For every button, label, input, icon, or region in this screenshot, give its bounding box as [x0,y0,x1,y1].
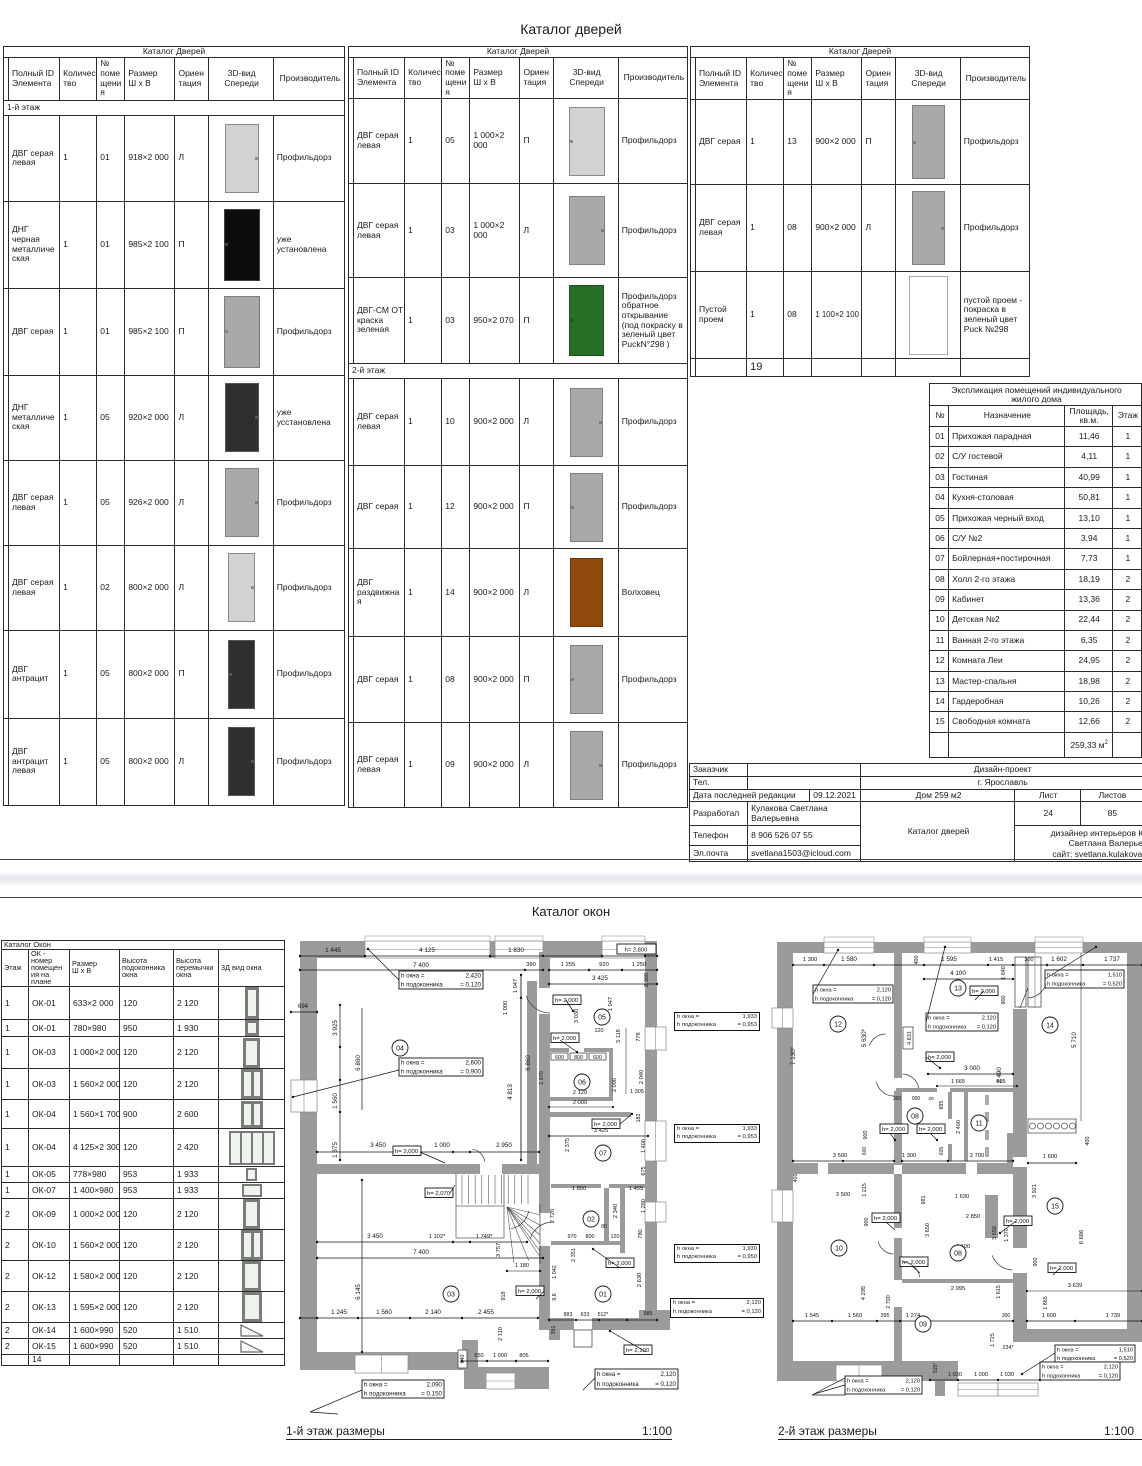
svg-text:1 255: 1 255 [561,962,576,968]
svg-text:1 030: 1 030 [948,1372,962,1378]
svg-text:= 0,120: = 0,120 [872,997,891,1003]
svg-text:= 0,120: = 0,120 [977,1025,996,1031]
svg-text:3 921: 3 921 [1032,1184,1038,1198]
svg-text:694: 694 [298,1004,309,1010]
svg-text:09: 09 [919,1322,927,1329]
svg-text:633: 633 [581,1312,590,1318]
svg-text:5 710: 5 710 [1071,1032,1078,1048]
svg-text:1 245: 1 245 [331,1309,347,1316]
svg-text:h подоконника: h подоконника [401,1069,443,1076]
svg-text:02: 02 [587,1217,595,1224]
svg-text:778: 778 [636,1032,642,1041]
svg-text:600: 600 [862,1147,868,1156]
svg-text:4 125: 4 125 [419,947,435,954]
svg-text:900: 900 [1033,1258,1039,1267]
svg-text:2 110: 2 110 [498,1327,504,1341]
svg-text:120: 120 [611,1234,620,1240]
svg-text:= 0,120: = 0,120 [901,1388,920,1394]
svg-text:1 102*: 1 102* [429,1234,447,1240]
svg-text:h подоконника: h подоконника [597,1381,639,1388]
svg-text:900: 900 [912,1096,921,1102]
svg-text:1 737: 1 737 [1104,956,1120,963]
svg-text:918: 918 [501,1291,507,1300]
svg-text:970: 970 [568,1234,577,1240]
svg-text:1 375: 1 375 [332,1142,339,1158]
svg-text:h= 2,000: h= 2,000 [874,1216,898,1222]
svg-text:900: 900 [863,1131,869,1140]
svg-text:1 455: 1 455 [629,1186,644,1192]
svg-text:2 375: 2 375 [565,1138,571,1152]
svg-text:2,420: 2,420 [466,973,482,980]
svg-text:4 813: 4 813 [507,1084,514,1100]
svg-text:= 0,150: = 0,150 [421,1391,442,1398]
svg-text:03: 03 [447,1292,455,1299]
svg-text:6 686: 6 686 [1079,1230,1085,1245]
svg-text:1 600: 1 600 [1042,1313,1057,1319]
svg-text:2,120: 2,120 [906,1379,920,1385]
svg-text:3 500: 3 500 [836,1192,851,1198]
svg-text:h окна =: h окна = [401,1060,425,1067]
svg-text:2 120: 2 120 [573,1090,588,1096]
svg-text:h подоконника: h подоконника [1057,1356,1096,1362]
svg-text:1 400: 1 400 [641,1139,647,1153]
svg-text:800: 800 [574,1055,583,1061]
svg-text:1 560: 1 560 [332,1093,339,1109]
svg-text:900: 900 [864,1218,870,1227]
svg-text:h= 2,000: h= 2,000 [928,1055,952,1061]
svg-text:1 560: 1 560 [848,1313,863,1319]
svg-text:300: 300 [1025,957,1034,963]
svg-text:391: 391 [551,1326,557,1335]
svg-text:h подоконника: h подоконника [364,1391,406,1398]
svg-text:h= 2,000: h= 2,000 [972,989,996,995]
svg-text:7 400: 7 400 [413,1249,429,1256]
svg-text:1 595: 1 595 [941,956,957,963]
svg-text:1 370: 1 370 [1004,1228,1010,1242]
svg-text:13: 13 [954,986,962,993]
svg-text:300: 300 [1002,1313,1011,1319]
svg-text:1,510: 1,510 [1108,973,1122,979]
svg-text:2 090: 2 090 [612,1078,618,1092]
svg-text:400: 400 [793,1174,799,1183]
svg-text:h подоконника: h подоконника [815,997,854,1003]
svg-text:2 040: 2 040 [639,1070,645,1085]
svg-text:04: 04 [396,1046,404,1053]
svg-text:= 0,120: = 0,120 [460,982,481,989]
svg-text:1 739: 1 739 [1106,1313,1121,1319]
svg-text:3 757: 3 757 [496,1243,502,1258]
svg-text:10: 10 [835,1246,843,1253]
svg-text:883: 883 [564,1312,573,1318]
svg-text:h= 2,100: h= 2,100 [626,1348,650,1354]
svg-text:2 140: 2 140 [425,1309,441,1316]
svg-text:600: 600 [555,1055,564,1061]
svg-text:4 100: 4 100 [950,970,966,977]
svg-text:3 030: 3 030 [574,1009,580,1024]
svg-text:h подоконника: h подоконника [847,1388,886,1394]
svg-text:1 830: 1 830 [508,947,524,954]
svg-text:1 300: 1 300 [803,957,818,963]
svg-text:h окна =: h окна = [1057,1347,1079,1353]
svg-text:1 000: 1 000 [974,1372,988,1378]
svg-text:1 865: 1 865 [1043,1296,1049,1310]
svg-text:1 300: 1 300 [902,1153,917,1159]
svg-text:985: 985 [644,1311,653,1317]
svg-text:1 602: 1 602 [1051,956,1067,963]
svg-text:h= 2,800: h= 2,800 [625,948,648,954]
svg-text:800: 800 [586,1234,595,1240]
svg-text:h= 2,000: h= 2,000 [902,1260,926,1266]
svg-text:2 340: 2 340 [613,1204,619,1219]
svg-text:3 550: 3 550 [992,1226,998,1240]
svg-text:h= 2,000: h= 2,000 [594,1122,618,1128]
svg-text:= 0,900: = 0,900 [460,1069,481,1076]
svg-text:3 639: 3 639 [1068,1283,1083,1289]
svg-text:895: 895 [939,1101,945,1110]
svg-text:3 450: 3 450 [367,1233,383,1240]
svg-text:= 0,120: = 0,120 [1099,1374,1118,1380]
svg-text:3 425: 3 425 [592,975,608,982]
svg-text:1 665: 1 665 [951,1079,965,1085]
svg-text:1 180: 1 180 [515,1263,529,1269]
svg-text:900: 900 [1001,995,1007,1004]
svg-text:2,120: 2,120 [661,1371,677,1378]
svg-text:6 145: 6 145 [355,1284,362,1300]
svg-text:05: 05 [598,1015,606,1022]
svg-text:1 000: 1 000 [503,1001,509,1016]
svg-text:1 250: 1 250 [632,962,647,968]
svg-text:675: 675 [641,1166,647,1175]
svg-text:11: 11 [975,1121,982,1128]
svg-text:935: 935 [996,1079,1005,1085]
svg-text:h= 2,070: h= 2,070 [427,1191,451,1197]
svg-text:01: 01 [599,1292,607,1299]
svg-text:1 600: 1 600 [1043,1154,1058,1160]
svg-text:h= 2,000: h= 2,000 [919,1127,943,1133]
svg-text:h окна =: h окна = [364,1382,388,1389]
svg-text:2 850: 2 850 [966,1214,981,1220]
svg-text:6 860: 6 860 [525,1055,532,1071]
svg-text:4 295: 4 295 [861,1286,867,1301]
svg-text:1 000: 1 000 [434,1142,450,1149]
svg-text:h= 2,000: h= 2,000 [553,1036,577,1042]
svg-text:400: 400 [914,956,920,965]
svg-text:15: 15 [1051,1204,1059,1211]
svg-text:h подоконника: h подоконника [1047,982,1086,988]
svg-text:1 970: 1 970 [539,1071,545,1085]
svg-text:1 560: 1 560 [376,1309,392,1316]
svg-text:2 700: 2 700 [970,1153,985,1159]
svg-text:2 351: 2 351 [571,1248,577,1262]
svg-text:3 500: 3 500 [833,1153,848,1159]
svg-text:= 0,520: = 0,520 [1103,982,1122,988]
svg-text:512*: 512* [598,1312,609,1318]
svg-text:2 300: 2 300 [644,973,650,988]
svg-text:h окна =: h окна = [928,1016,950,1022]
svg-text:h= 2,000: h= 2,000 [395,1149,419,1155]
svg-text:h подоконника: h подоконника [1042,1374,1081,1380]
svg-text:120: 120 [595,1028,604,1034]
svg-text:3 000: 3 000 [964,1065,980,1072]
svg-text:h подоконника: h подоконника [928,1025,967,1031]
svg-text:1 047: 1 047 [608,997,614,1011]
svg-text:1 305: 1 305 [630,1089,644,1095]
svg-text:981: 981 [921,1196,927,1205]
svg-text:1 030: 1 030 [1000,1372,1014,1378]
svg-text:805: 805 [519,1353,528,1359]
svg-text:06: 06 [578,1080,586,1087]
svg-text:515*: 515* [933,1363,939,1373]
svg-text:08: 08 [954,1251,962,1258]
svg-text:2 000: 2 000 [573,1100,588,1106]
svg-text:1 545: 1 545 [805,1313,820,1319]
svg-text:2 700: 2 700 [886,1295,892,1309]
svg-text:1 580: 1 580 [841,956,857,963]
svg-text:12: 12 [834,1022,842,1029]
svg-text:400: 400 [1085,1137,1091,1146]
svg-text:640: 640 [460,1355,466,1364]
svg-text:1 749*: 1 749* [476,1234,494,1240]
svg-text:650: 650 [474,1353,483,1359]
svg-text:5 118: 5 118 [616,1029,622,1043]
svg-text:3 925: 3 925 [332,1020,339,1036]
svg-text:2,120: 2,120 [1104,1365,1118,1371]
svg-text:07: 07 [599,1151,607,1158]
svg-text:5 630*: 5 630* [861,1028,868,1047]
svg-text:h окна =: h окна = [1042,1365,1064,1371]
svg-text:2,600: 2,600 [466,1060,482,1067]
svg-text:2,090: 2,090 [427,1382,443,1389]
svg-text:600: 600 [593,1055,602,1061]
svg-text:6 860: 6 860 [355,1055,362,1071]
svg-text:h окна =: h окна = [815,988,837,994]
svg-text:2 630: 2 630 [637,1273,643,1288]
svg-text:1 445: 1 445 [325,947,341,954]
svg-text:3 450: 3 450 [370,1142,386,1149]
svg-text:h окна =: h окна = [401,973,425,980]
svg-text:1 415: 1 415 [989,957,1004,963]
svg-text:80: 80 [601,1224,607,1230]
svg-text:780: 780 [638,1229,644,1238]
svg-text:2 720: 2 720 [550,1209,556,1224]
svg-text:1 630: 1 630 [955,1194,970,1200]
svg-text:2 950: 2 950 [496,1142,512,1149]
svg-text:1 640: 1 640 [1001,966,1007,980]
svg-text:4 631: 4 631 [907,1031,913,1045]
svg-text:605: 605 [939,1147,945,1156]
svg-text:395: 395 [881,1313,890,1319]
svg-text:h= 2,000: h= 2,000 [1006,1219,1030,1225]
svg-text:h окна =: h окна = [597,1371,621,1378]
svg-text:1 215: 1 215 [862,1183,868,1197]
svg-text:300: 300 [893,1096,902,1102]
svg-text:1,510: 1,510 [1119,1347,1133,1353]
svg-text:1 042: 1 042 [552,1265,558,1279]
svg-text:920: 920 [599,962,609,968]
svg-text:h подоконника: h подоконника [401,982,443,989]
svg-text:1 850: 1 850 [572,1186,587,1192]
svg-text:7 130*: 7 130* [790,1046,797,1065]
svg-text:2,120: 2,120 [982,1016,996,1022]
svg-text:h= 2,000: h= 2,000 [882,1127,906,1133]
svg-text:234*: 234* [1002,1345,1014,1351]
svg-text:20: 20 [928,1096,934,1102]
svg-text:h= 2,000: h= 2,000 [1050,1266,1074,1272]
svg-text:= 0,120: = 0,120 [655,1381,676,1388]
svg-text:7 400: 7 400 [413,962,429,969]
svg-text:2 400: 2 400 [956,1120,962,1134]
svg-text:08: 08 [911,1114,919,1121]
svg-text:1 615: 1 615 [996,1285,1002,1299]
svg-text:3 650: 3 650 [925,1223,931,1237]
svg-text:1 000: 1 000 [493,1353,507,1359]
svg-text:1 047: 1 047 [513,979,519,994]
svg-text:2,120: 2,120 [877,988,891,994]
svg-text:h= 2,000: h= 2,000 [518,1289,542,1295]
svg-text:380: 380 [526,962,536,968]
svg-text:= 0,520: = 0,520 [1114,1356,1133,1362]
svg-text:2 455: 2 455 [478,1309,494,1316]
svg-text:9,8: 9,8 [552,1293,558,1300]
svg-text:182: 182 [636,1114,642,1123]
svg-text:14: 14 [1046,1023,1054,1030]
svg-text:2 995: 2 995 [951,1286,966,1292]
svg-text:1 280: 1 280 [641,1199,647,1213]
svg-text:1 725: 1 725 [990,1333,996,1347]
svg-text:h окна =: h окна = [847,1379,869,1385]
